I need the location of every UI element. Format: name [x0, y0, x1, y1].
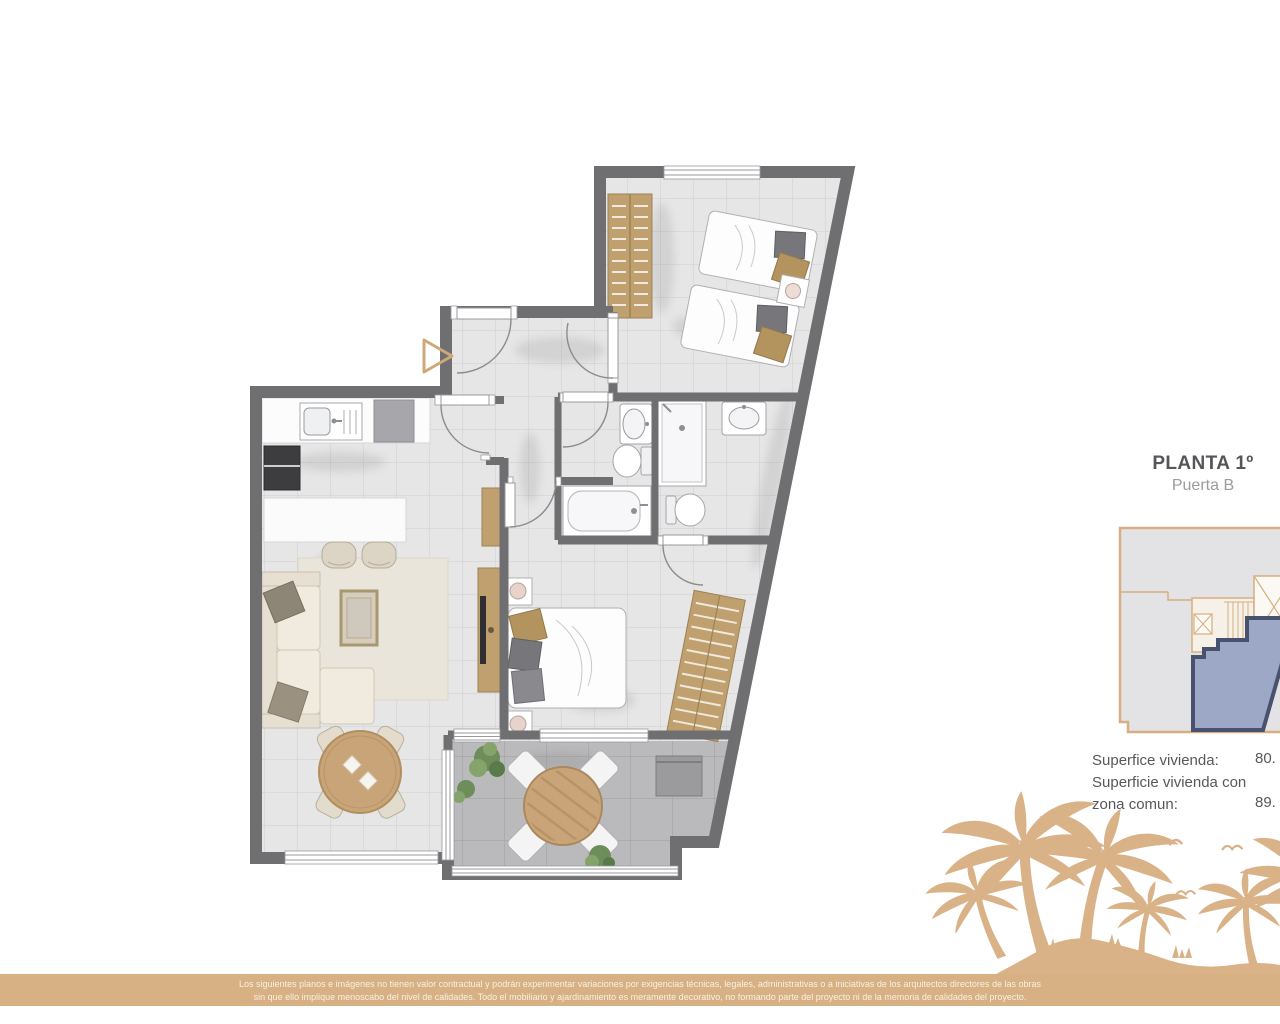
kitchen-island	[264, 498, 406, 542]
wardrobe	[608, 194, 652, 318]
surface-line3-value: 89.	[1255, 794, 1280, 811]
key-plan-elevator	[1194, 614, 1212, 634]
living-room-window	[285, 851, 438, 864]
grass-tuft	[1108, 934, 1121, 946]
twin-bedroom-window	[664, 166, 760, 179]
shower	[658, 400, 706, 486]
kitchen-sink	[300, 403, 362, 440]
seagull-icon	[1222, 846, 1242, 850]
plan-title: PLANTA 1º	[1128, 453, 1278, 475]
disclaimer-line2: sin que ello implique menoscabo del nive…	[0, 991, 1280, 1004]
dining-table	[314, 724, 408, 821]
disclaimer-band: Los siguientes planos e imágenes no tien…	[0, 974, 1280, 1006]
surface-line2-label: Superficie vivienda con	[1092, 772, 1280, 794]
grass-tuft	[1172, 945, 1192, 958]
terrace-sliding-door	[454, 729, 500, 742]
surface-line1-label: Superfice vivienda:	[1092, 750, 1280, 772]
bar-stool	[322, 542, 356, 568]
disclaimer-line1: Los siguientes planos e imágenes no tien…	[0, 978, 1280, 991]
surface-info: Superfice vivienda: Superficie vivienda …	[1092, 750, 1280, 816]
apartment-floor-plan	[256, 166, 848, 876]
ac-unit	[656, 756, 702, 796]
coffee-table	[341, 591, 377, 645]
plan-subtitle: Puerta B	[1128, 477, 1278, 495]
key-plan	[1120, 528, 1280, 732]
floor-plan-canvas	[0, 0, 1280, 1024]
terrace-glass-railing	[452, 866, 678, 876]
toilet	[613, 445, 652, 477]
page: { "header": { "title": "PLANTA 1º", "sub…	[0, 0, 1280, 1024]
surface-line3-label: zona comun:	[1092, 794, 1280, 816]
toilet	[666, 494, 705, 526]
double-bed	[508, 608, 626, 708]
master-bedroom-window	[540, 729, 648, 742]
washbasin	[722, 402, 766, 435]
washbasin	[620, 404, 652, 444]
living-terrace-side-window	[442, 750, 454, 860]
nightstand	[777, 275, 810, 308]
palm-tree	[1194, 864, 1280, 972]
cooktop	[374, 400, 414, 442]
bar-stool	[362, 542, 396, 568]
bathtub	[563, 486, 651, 536]
oven-column	[264, 446, 300, 490]
tv	[480, 596, 486, 664]
surface-line1-value: 80.	[1255, 750, 1280, 767]
